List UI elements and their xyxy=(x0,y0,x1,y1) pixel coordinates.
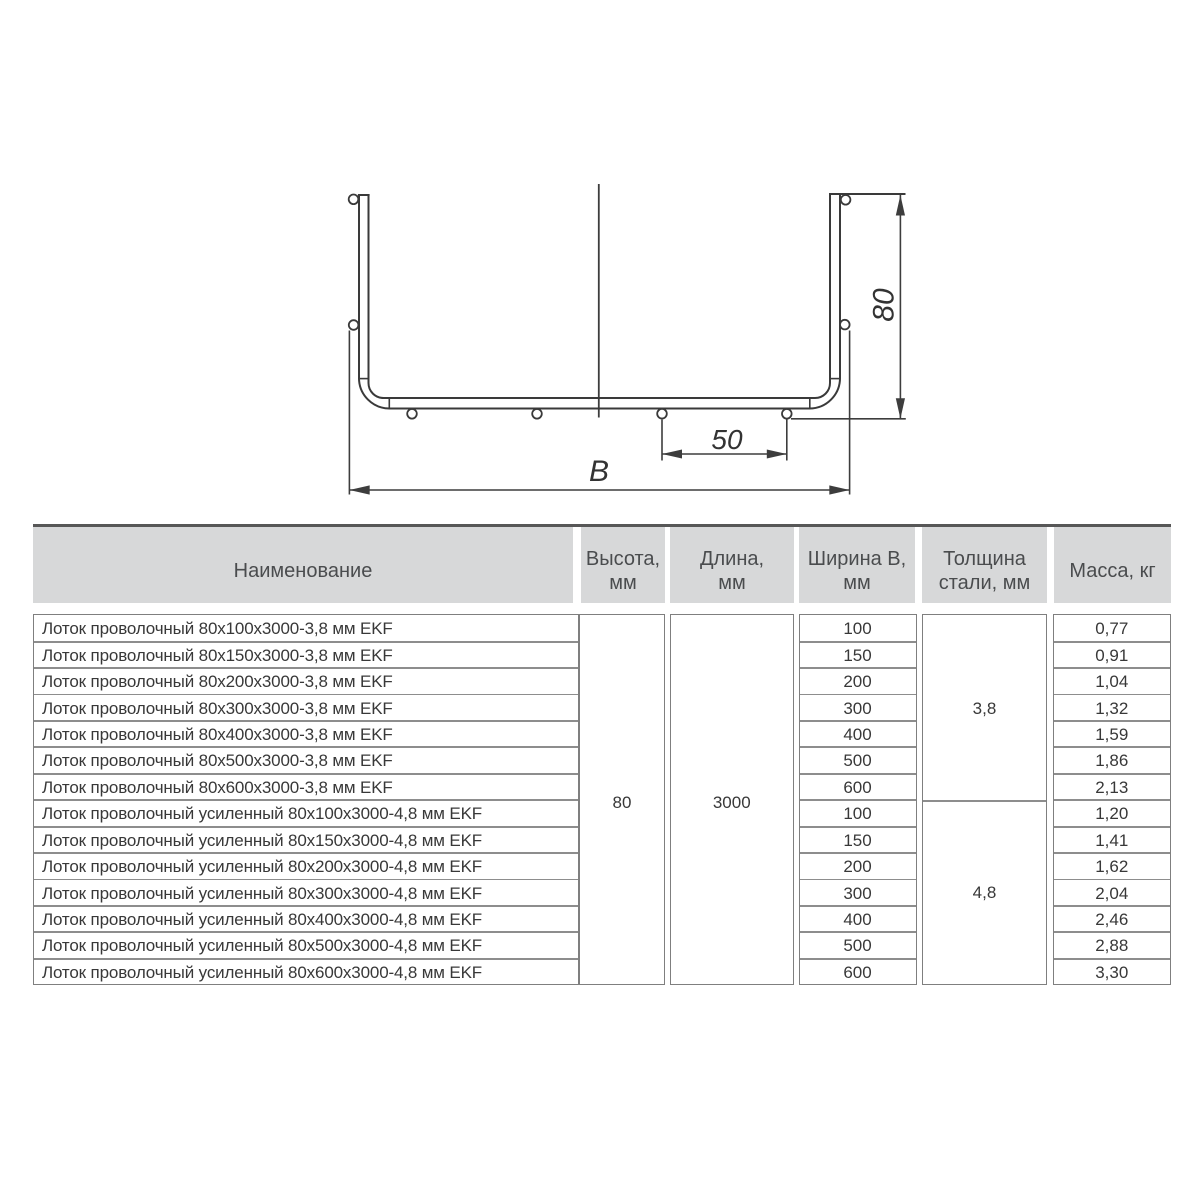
svg-text:50: 50 xyxy=(711,424,743,455)
svg-text:80: 80 xyxy=(868,288,901,322)
svg-text:B: B xyxy=(589,455,609,488)
